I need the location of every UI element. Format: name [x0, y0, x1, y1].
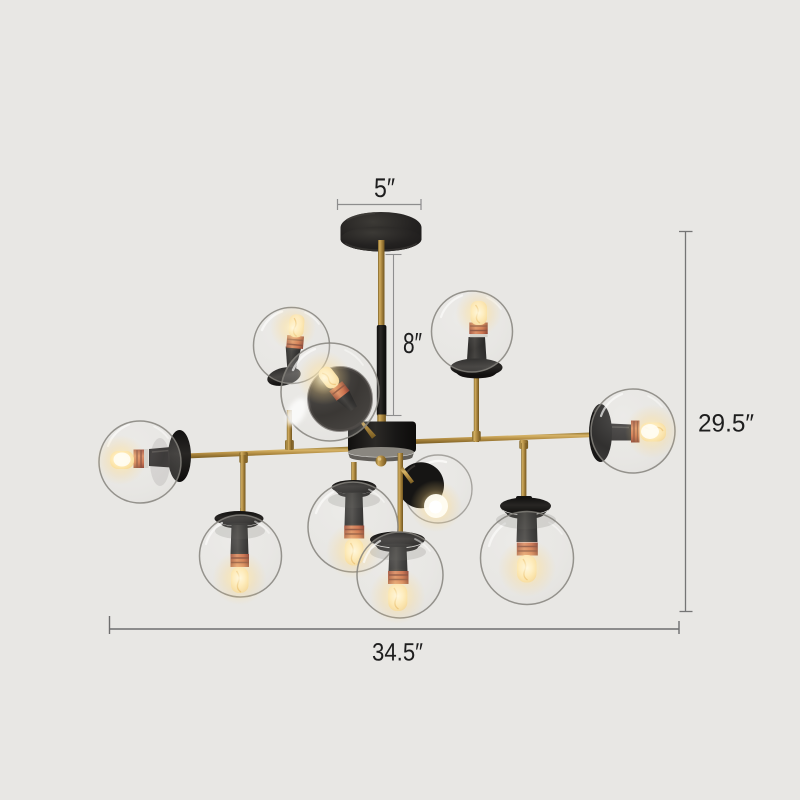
svg-text:5″: 5″	[374, 173, 395, 203]
svg-text:34.5″: 34.5″	[372, 639, 423, 667]
svg-text:29.5″: 29.5″	[698, 410, 754, 438]
svg-text:8″: 8″	[403, 328, 422, 360]
